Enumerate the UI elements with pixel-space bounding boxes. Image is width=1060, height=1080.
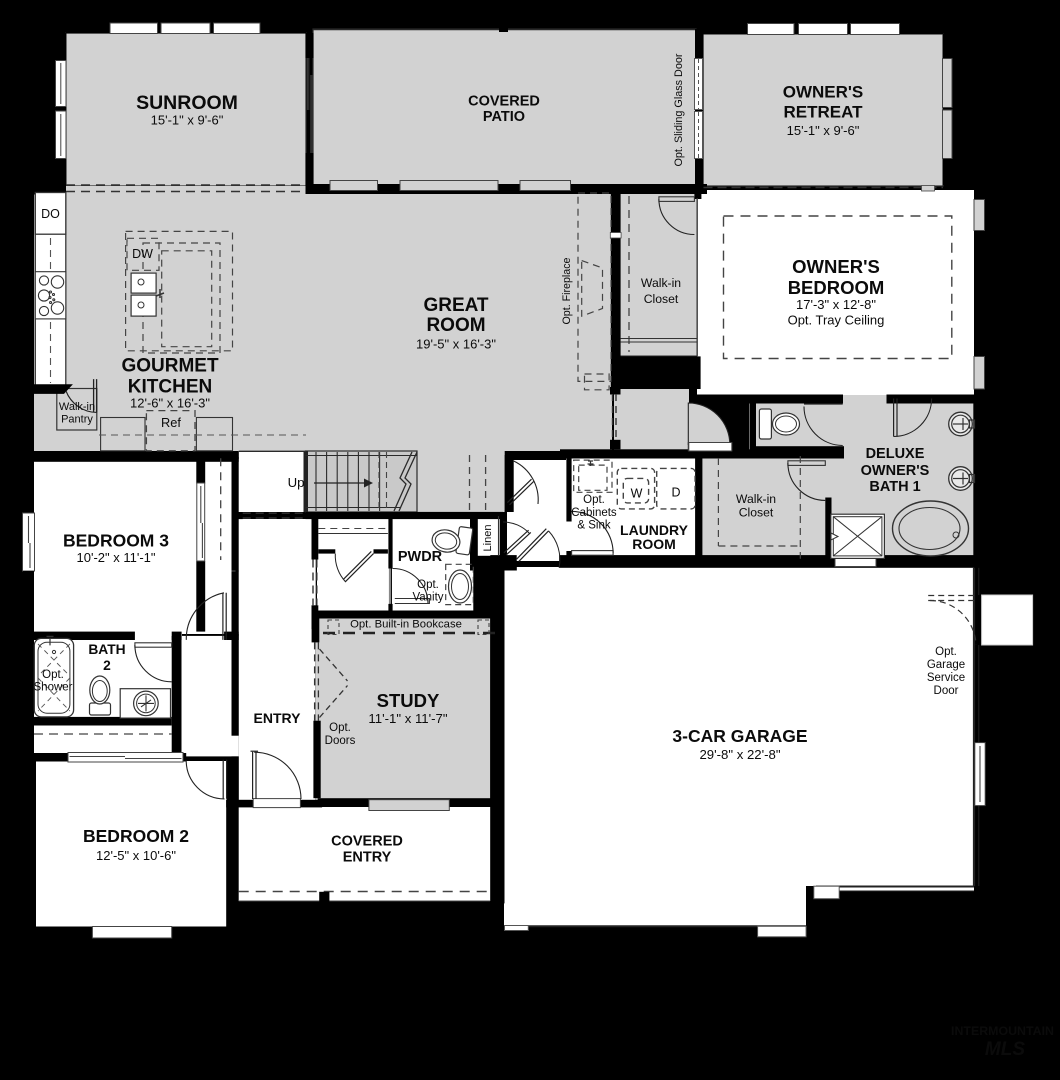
svg-text:Door: Door <box>934 685 959 697</box>
svg-text:3-CAR GARAGE: 3-CAR GARAGE <box>672 726 807 746</box>
svg-text:COVERED: COVERED <box>468 94 540 110</box>
svg-text:ENTRY: ENTRY <box>343 850 392 866</box>
svg-text:D: D <box>671 486 680 500</box>
svg-text:BEDROOM 3: BEDROOM 3 <box>63 531 169 551</box>
svg-text:INTERMOUNTAIN: INTERMOUNTAIN <box>951 1024 1054 1038</box>
svg-text:ROOM: ROOM <box>632 536 676 552</box>
svg-text:11'-1" x 11'-7": 11'-1" x 11'-7" <box>368 711 447 726</box>
svg-text:ENTRY: ENTRY <box>254 710 302 726</box>
svg-text:Shower: Shower <box>34 682 73 694</box>
svg-text:Opt.: Opt. <box>417 579 439 591</box>
svg-text:PWDR: PWDR <box>398 549 443 565</box>
svg-text:ROOM: ROOM <box>426 315 485 336</box>
svg-text:W: W <box>631 487 643 501</box>
svg-text:Cabinets: Cabinets <box>571 507 617 519</box>
svg-text:17'-3" x 12'-8": 17'-3" x 12'-8" <box>796 297 876 312</box>
svg-text:PATIO: PATIO <box>483 109 525 125</box>
svg-text:Opt. Tray Ceiling: Opt. Tray Ceiling <box>788 313 885 328</box>
svg-text:BATH: BATH <box>88 642 125 657</box>
svg-text:Walk-in: Walk-in <box>736 492 776 506</box>
svg-text:10'-2" x 11'-1": 10'-2" x 11'-1" <box>77 550 156 565</box>
svg-text:Walk-in: Walk-in <box>641 276 681 290</box>
svg-text:Opt.: Opt. <box>329 722 351 734</box>
svg-text:Opt.: Opt. <box>583 494 605 506</box>
svg-text:Opt. Fireplace: Opt. Fireplace <box>561 258 573 325</box>
svg-text:Closet: Closet <box>644 292 679 306</box>
svg-text:KITCHEN: KITCHEN <box>128 377 212 398</box>
svg-text:Walk-in: Walk-in <box>59 401 95 413</box>
svg-text:DW: DW <box>132 247 153 261</box>
svg-text:STUDY: STUDY <box>377 690 440 711</box>
svg-text:2: 2 <box>103 658 111 673</box>
svg-text:12'-5" x 10'-6": 12'-5" x 10'-6" <box>96 848 176 863</box>
svg-text:GOURMET: GOURMET <box>121 356 219 377</box>
svg-text:19'-5" x 16'-3": 19'-5" x 16'-3" <box>416 337 496 352</box>
svg-text:OWNER'S: OWNER'S <box>792 256 880 277</box>
svg-text:SUNROOM: SUNROOM <box>136 92 238 114</box>
svg-text:DELUXE: DELUXE <box>866 446 925 462</box>
svg-text:Garage: Garage <box>927 659 965 671</box>
svg-text:Up: Up <box>288 475 305 490</box>
svg-text:Doors: Doors <box>325 735 356 747</box>
svg-text:15'-1" x 9'-6": 15'-1" x 9'-6" <box>151 113 224 128</box>
svg-text:12'-6" x 16'-3": 12'-6" x 16'-3" <box>130 396 210 411</box>
svg-text:BEDROOM 2: BEDROOM 2 <box>83 826 189 846</box>
svg-text:DO: DO <box>41 207 60 221</box>
svg-text:15'-1" x 9'-6": 15'-1" x 9'-6" <box>787 123 860 138</box>
svg-text:Ref: Ref <box>161 415 181 430</box>
svg-text:Pantry: Pantry <box>61 414 93 426</box>
svg-text:29'-8" x 22'-8": 29'-8" x 22'-8" <box>699 747 780 762</box>
svg-text:Linen: Linen <box>482 525 494 552</box>
svg-text:OWNER'S: OWNER'S <box>783 83 864 102</box>
svg-text:Opt. Built-in Bookcase: Opt. Built-in Bookcase <box>350 619 462 631</box>
svg-text:MLS: MLS <box>985 1039 1025 1060</box>
svg-text:OWNER'S: OWNER'S <box>861 463 930 479</box>
svg-text:GREAT: GREAT <box>423 295 488 316</box>
svg-text:BEDROOM: BEDROOM <box>788 277 885 298</box>
svg-text:COVERED: COVERED <box>331 834 403 850</box>
svg-text:Opt. Sliding Glass Door: Opt. Sliding Glass Door <box>673 53 685 166</box>
svg-text:& Sink: & Sink <box>577 520 610 532</box>
svg-text:Opt.: Opt. <box>42 669 64 681</box>
svg-text:RETREAT: RETREAT <box>783 103 863 122</box>
svg-text:Vanity: Vanity <box>412 592 443 604</box>
svg-text:BATH 1: BATH 1 <box>869 479 920 495</box>
svg-text:Service: Service <box>927 672 965 684</box>
svg-text:Opt.: Opt. <box>935 646 957 658</box>
svg-text:Closet: Closet <box>739 506 774 520</box>
